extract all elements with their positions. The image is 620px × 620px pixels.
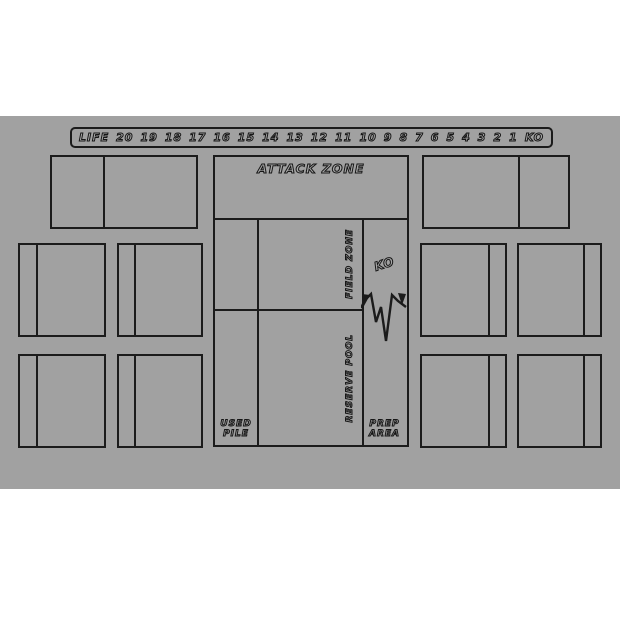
life-value: 11 — [335, 131, 352, 144]
slot-divider — [134, 245, 136, 335]
life-value: 12 — [311, 131, 328, 144]
life-value: 3 — [478, 131, 487, 144]
used-pile-label-line1: USED — [220, 419, 251, 429]
slot-divider — [518, 157, 520, 227]
life-value: 17 — [189, 131, 206, 144]
prep-area-zone: PREP AREA — [362, 420, 407, 440]
double-card-slot-top-left — [50, 155, 198, 229]
playmat-surface: LIFE 2019181716151413121110987654321KO — [0, 116, 620, 489]
field-zone-label: FIELD ZONE — [345, 229, 355, 299]
card-slot-left-3 — [18, 354, 106, 448]
card-slot-left-4 — [117, 354, 203, 448]
used-pile-label-line2: PILE — [223, 429, 249, 439]
life-value: 19 — [140, 131, 157, 144]
playmat-page: LIFE 2019181716151413121110987654321KO — [0, 0, 620, 620]
life-label: LIFE — [79, 131, 109, 144]
life-value: 18 — [165, 131, 182, 144]
field-zone: FIELD ZONE — [339, 218, 361, 309]
slot-divider — [36, 356, 38, 446]
double-card-slot-top-right — [422, 155, 570, 229]
life-value: 1 — [509, 131, 518, 144]
life-value: 13 — [286, 131, 303, 144]
life-value: 16 — [213, 131, 230, 144]
card-slot-left-1 — [18, 243, 106, 337]
used-pile-zone: USED PILE — [215, 420, 257, 440]
slot-divider — [134, 356, 136, 446]
life-value: KO — [525, 131, 544, 144]
reserve-pool-label: RESERVE POOL — [345, 334, 355, 423]
prep-area-label-line1: PREP — [369, 419, 399, 429]
attack-zone-label: ATTACK ZONE — [215, 161, 407, 176]
life-value: 20 — [116, 131, 133, 144]
life-value: 15 — [238, 131, 255, 144]
life-value: 2 — [493, 131, 502, 144]
card-slot-left-2 — [117, 243, 203, 337]
card-slot-right-1 — [420, 243, 507, 337]
slot-divider — [583, 356, 585, 446]
slot-divider — [36, 245, 38, 335]
ko-label: KO — [372, 254, 396, 274]
life-counter-bar: LIFE 2019181716151413121110987654321KO — [70, 127, 553, 148]
used-pile-column-line — [257, 218, 259, 445]
prep-area-label-line2: AREA — [369, 429, 400, 439]
slot-divider — [103, 157, 105, 227]
ko-burst-icon — [361, 291, 407, 347]
life-value: 10 — [359, 131, 376, 144]
card-slot-right-2 — [517, 243, 602, 337]
life-value: 4 — [462, 131, 471, 144]
battle-panel: ATTACK ZONE FIELD ZONE RESERVE POOL KO — [213, 155, 409, 447]
card-slot-right-4 — [517, 354, 602, 448]
reserve-pool: RESERVE POOL — [339, 311, 361, 445]
life-value: 14 — [262, 131, 279, 144]
card-slot-right-3 — [420, 354, 507, 448]
slot-divider — [488, 356, 490, 446]
life-value: 6 — [431, 131, 440, 144]
life-value: 9 — [384, 131, 393, 144]
life-value: 7 — [415, 131, 424, 144]
slot-divider — [488, 245, 490, 335]
life-value: 5 — [446, 131, 455, 144]
slot-divider — [583, 245, 585, 335]
life-value: 8 — [399, 131, 408, 144]
